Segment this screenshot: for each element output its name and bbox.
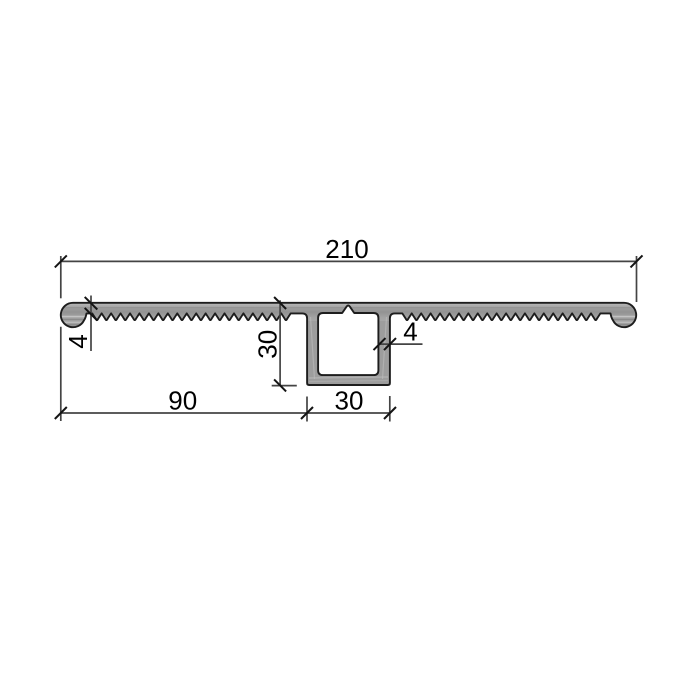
svg-text:4: 4 (403, 317, 417, 347)
svg-text:30: 30 (253, 330, 283, 359)
svg-text:4: 4 (63, 334, 93, 348)
svg-text:30: 30 (335, 386, 364, 416)
svg-text:90: 90 (168, 386, 197, 416)
svg-text:210: 210 (325, 234, 368, 264)
